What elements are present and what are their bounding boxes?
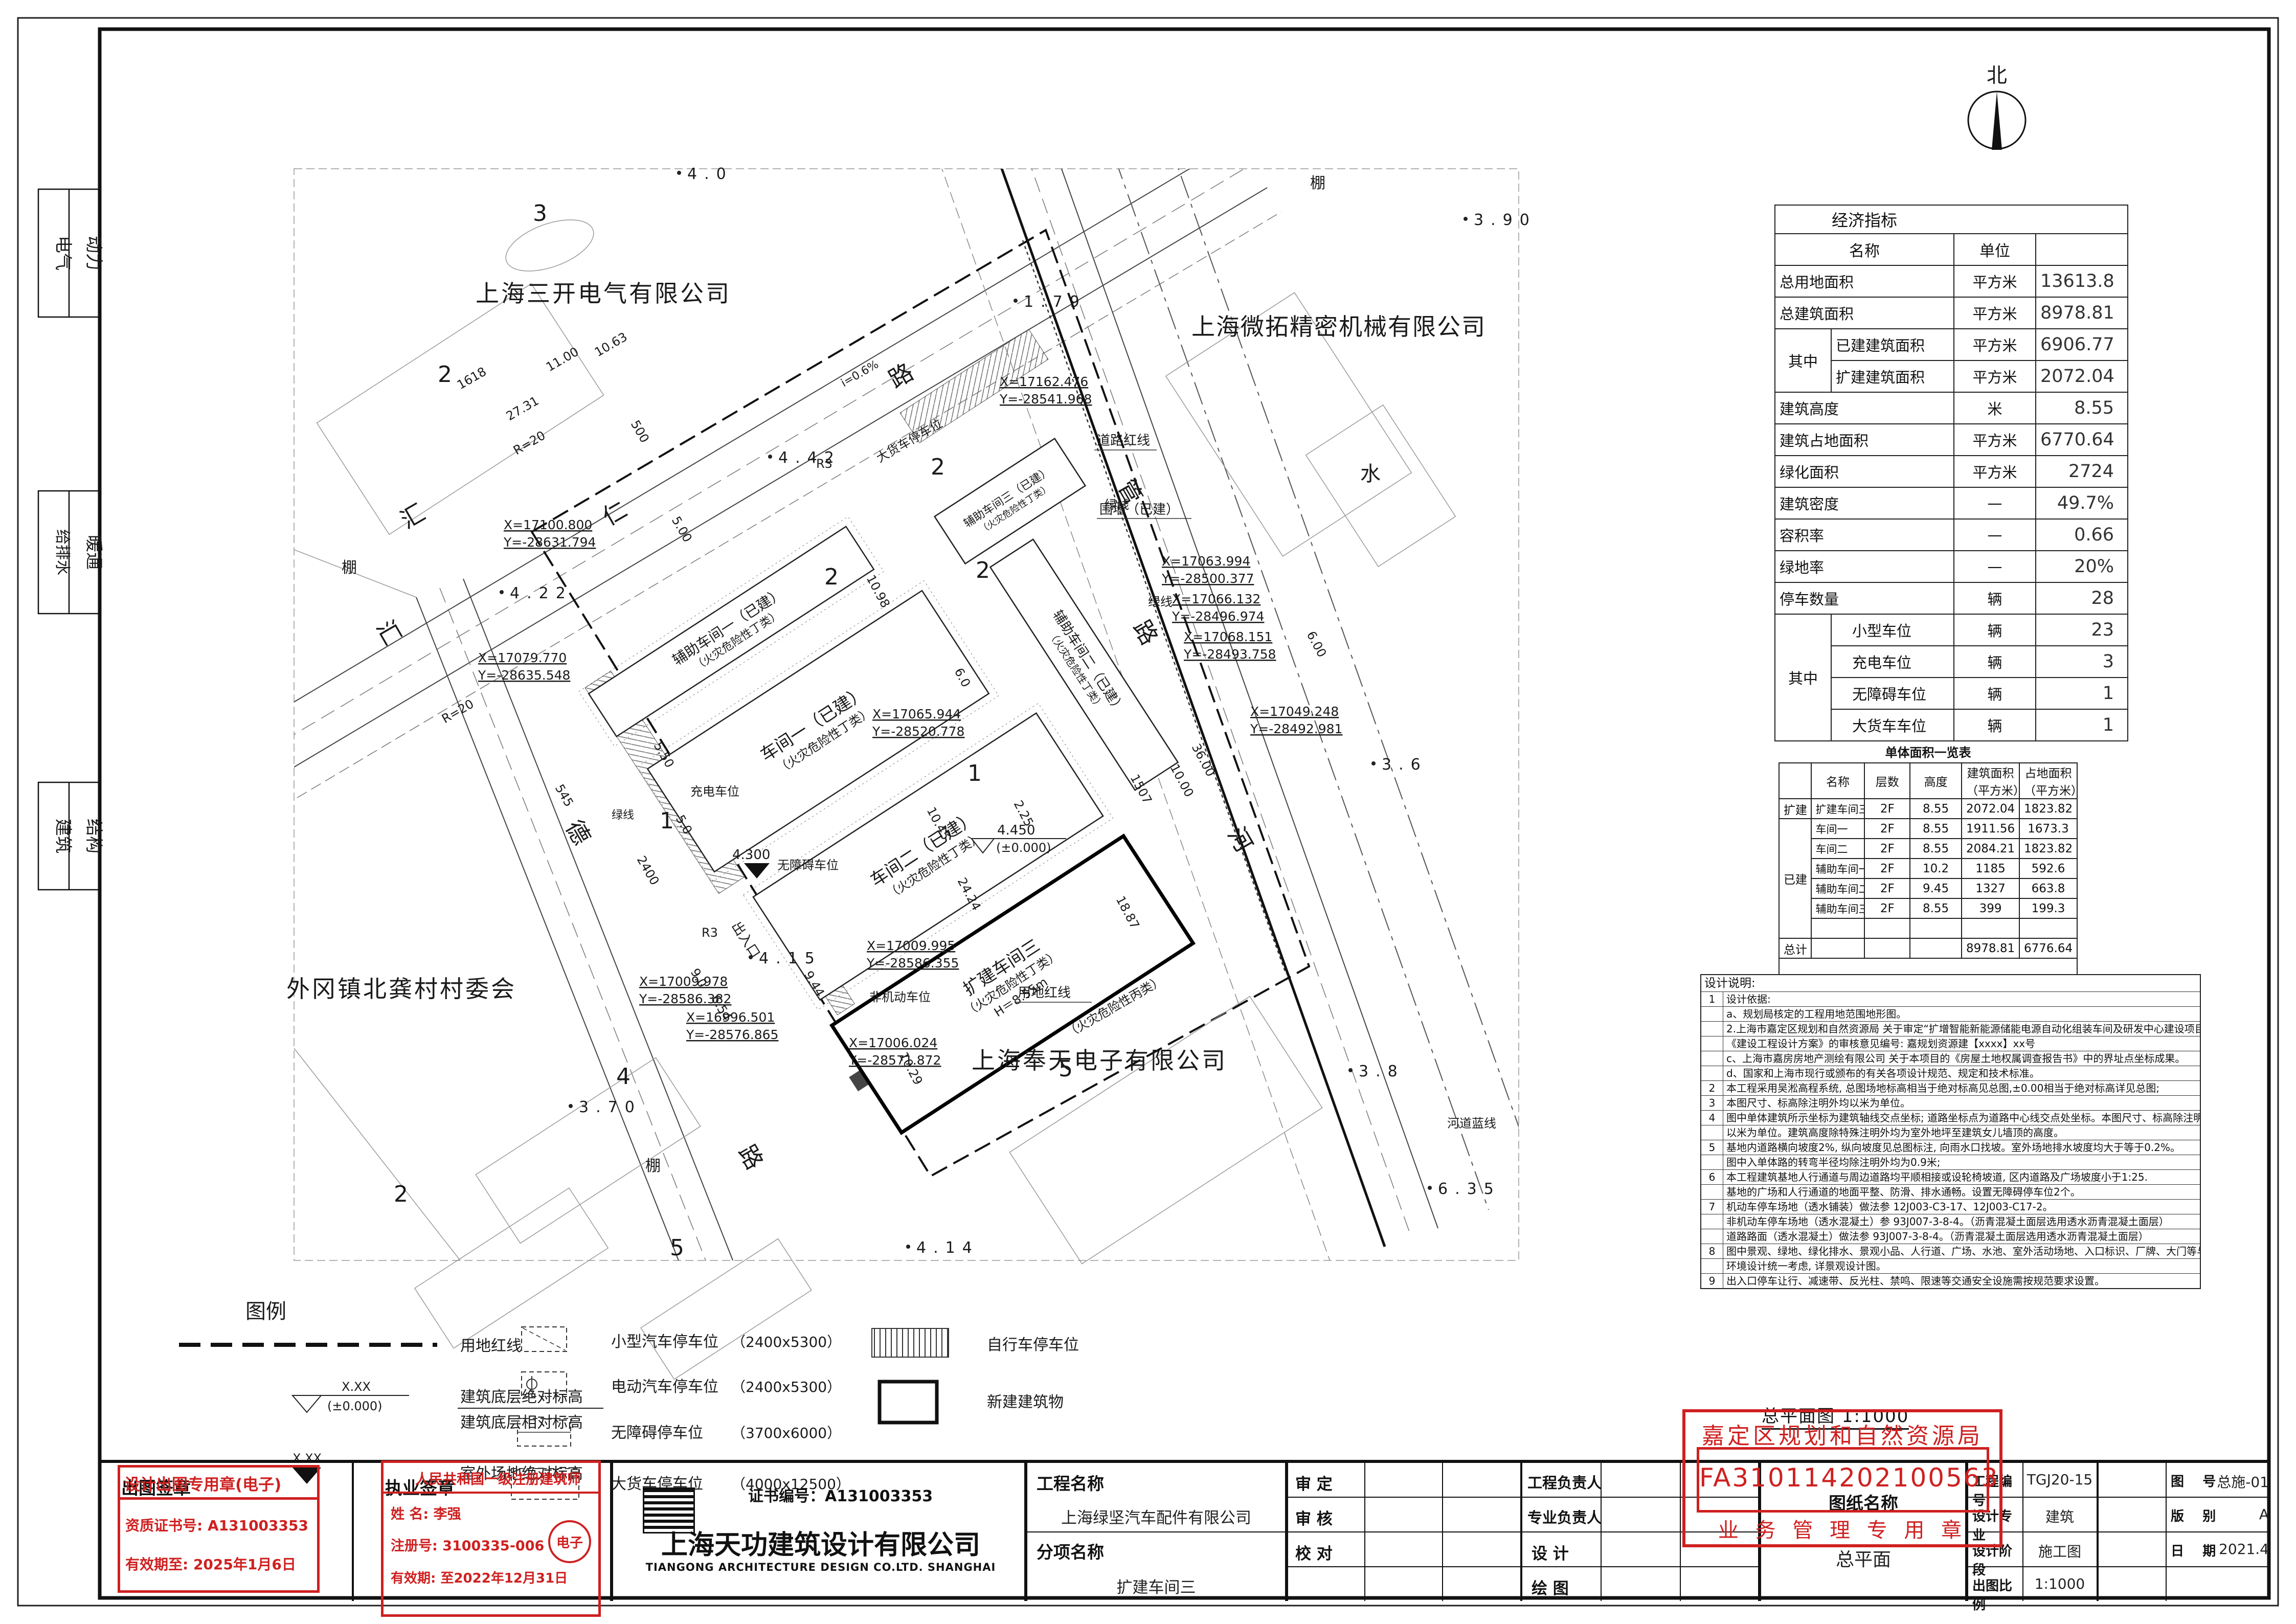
discipline-electrical: 电气: [53, 236, 73, 270]
note-no: 6: [1701, 1170, 1723, 1184]
eco-title: 经济指标: [1775, 205, 2128, 234]
license-seal-reg: 注册号: 3100335-006: [391, 1535, 544, 1554]
svg-text:10.00: 10.00: [1167, 762, 1197, 800]
note-text: 环境设计统一考虑, 详景观设计图。: [1723, 1259, 2200, 1273]
cell: 9.45: [1910, 878, 1962, 898]
svg-text:R3: R3: [702, 926, 718, 940]
cell: 13613.8: [2036, 265, 2128, 297]
svg-text:2400: 2400: [634, 853, 662, 888]
cell: 车间一: [1811, 819, 1865, 839]
svg-text:1: 1: [660, 808, 674, 834]
svg-text:R3: R3: [816, 457, 832, 471]
svg-text:6.35: 6.35: [1438, 1180, 1501, 1198]
svg-text:河道蓝线: 河道蓝线: [1447, 1116, 1496, 1131]
note-no: [1701, 1125, 1723, 1140]
svg-text:Y=-28493.758: Y=-28493.758: [1183, 647, 1276, 662]
cell: 名称: [1811, 763, 1865, 799]
svg-text:道路红线: 道路红线: [1097, 433, 1150, 448]
license-seal-valid: 有效期: 至2022年12月31日: [391, 1568, 568, 1587]
cell: —: [1954, 487, 2036, 519]
svg-text:10.63: 10.63: [592, 330, 630, 360]
cell: 辆: [1954, 582, 2036, 614]
cell-group: 其中: [1775, 329, 1831, 392]
svg-text:绿线: 绿线: [612, 809, 634, 822]
cell: 8.55: [1910, 799, 1962, 819]
cell: 建筑高度: [1775, 392, 1954, 424]
role-drafter: 绘 图: [1532, 1575, 1569, 1598]
svg-text:用地红线: 用地红线: [460, 1337, 522, 1355]
license-seal-stamp: 人民共和国一级注册建筑师 姓 名: 李强 注册号: 3100335-006 有效…: [381, 1460, 601, 1617]
note-text: 本工程采用吴淞高程系统, 总图场地标高相当于绝对标高见总图,±0.00相当于绝对…: [1723, 1081, 2200, 1095]
note-no: 9: [1701, 1274, 1723, 1288]
cell-group: 已建: [1779, 819, 1811, 938]
svg-text:Y=-28500.377: Y=-28500.377: [1161, 571, 1254, 586]
cell: [1910, 918, 1962, 938]
note-text: 本工程建筑基地人行通道与周边道路均平顺相接或设轮椅坡道, 区内道路及广场坡度小于…: [1723, 1170, 2200, 1184]
svg-text:路: 路: [884, 358, 918, 394]
cell: 大货车车位: [1831, 709, 1954, 741]
svg-text:X=17162.476: X=17162.476: [1000, 374, 1088, 389]
svg-text:德: 德: [560, 816, 596, 850]
svg-text:Y=-28496.974: Y=-28496.974: [1172, 609, 1264, 624]
note-no: [1701, 1007, 1723, 1021]
cell: 容积率: [1775, 519, 1954, 551]
svg-text:绿线: 绿线: [1148, 595, 1173, 609]
svg-text:仁: 仁: [598, 495, 632, 531]
cell: 占地面积（平方米）: [2019, 763, 2077, 799]
svg-text:X=17049.248: X=17049.248: [1250, 704, 1339, 719]
discipline-struct: 结构: [83, 819, 104, 853]
svg-text:水: 水: [1360, 462, 1381, 486]
svg-text:充电车位: 充电车位: [690, 784, 739, 799]
cell: 辆: [1954, 709, 2036, 741]
approval-shending: 审 定: [1295, 1471, 1333, 1494]
svg-text:2: 2: [824, 564, 839, 590]
cell: [1910, 938, 1962, 958]
svg-text:X.XX: X.XX: [342, 1380, 371, 1394]
sub-project-value: 扩建车间三: [1027, 1574, 1285, 1597]
north-arrow: 北: [1968, 64, 2025, 150]
svg-text:4.300: 4.300: [732, 847, 770, 863]
svg-text:4.15: 4.15: [759, 950, 822, 967]
cell: 1: [2036, 678, 2128, 709]
svg-text:5.00: 5.00: [669, 514, 695, 545]
svg-text:500: 500: [628, 418, 652, 445]
license-seal-name: 姓 名: 李强: [391, 1503, 461, 1523]
note-no: 7: [1701, 1200, 1723, 1214]
cell: [1864, 918, 1910, 938]
cell: [1962, 918, 2019, 938]
economic-indicators-table: 经济指标 名称 单位 总用地面积平方米13613.8 总建筑面积平方米8978.…: [1774, 205, 2128, 741]
cell: 1327: [1962, 878, 2019, 898]
meta-discipline: 建筑: [2023, 1506, 2096, 1526]
svg-text:Y=-28635.548: Y=-28635.548: [478, 668, 570, 683]
authority-name: 嘉定区规划和自然资源局: [1685, 1417, 1999, 1450]
cell: 2F: [1864, 859, 1910, 878]
drawing-sheet: { "sheet": { "margin_disciplines": {"d1"…: [0, 0, 2296, 1624]
cell: 2084.21: [1962, 839, 2019, 859]
note-no: 4: [1701, 1111, 1723, 1125]
svg-text:棚: 棚: [342, 559, 357, 577]
neighbor-fengtian: 上海奉天电子有限公司: [972, 1047, 1227, 1074]
cell: 层数: [1864, 763, 1910, 799]
col-header: [2036, 234, 2128, 265]
cell: 2F: [1864, 799, 1910, 819]
svg-text:棚: 棚: [645, 1157, 661, 1175]
svg-text:建筑底层相对标高: 建筑底层相对标高: [460, 1414, 583, 1432]
issue-seal-cert: 资质证书号: A131003353: [125, 1515, 308, 1535]
svg-text:X=17009.978: X=17009.978: [639, 974, 728, 989]
note-text: 设计依据:: [1723, 992, 2200, 1006]
cell: 车间二: [1811, 839, 1865, 859]
cell: 绿化面积: [1775, 456, 1954, 487]
cell: 平方米: [1954, 265, 2036, 297]
meta-version: A: [2194, 1506, 2289, 1523]
discipline-power: 动力: [83, 236, 104, 270]
company-name-en: TIANGONG ARCHITECTURE DESIGN CO.LTD. SHA…: [621, 1561, 1020, 1573]
cell: 充电车位: [1831, 646, 1954, 678]
svg-text:3.8: 3.8: [1359, 1063, 1405, 1080]
svg-text:X=17068.151: X=17068.151: [1184, 629, 1272, 644]
svg-text:1.79: 1.79: [1024, 293, 1087, 311]
svg-text:10.98: 10.98: [864, 573, 893, 611]
cell: 辆: [1954, 614, 2036, 646]
note-text: 《建设工程设计方案》的审核意见编号: 嘉规划资源建【xxxx】xx号: [1723, 1036, 2200, 1051]
cell: 扩建建筑面积: [1831, 360, 1954, 392]
col-header: 单位: [1954, 234, 2036, 265]
cell: 1185: [1962, 859, 2019, 878]
svg-text:5: 5: [670, 1235, 684, 1261]
svg-text:小型汽车停车位: 小型汽车停车位: [611, 1333, 718, 1351]
neighbor-cun: 外冈镇北龚村村委会: [286, 975, 516, 1003]
cell-group: 扩建: [1779, 799, 1811, 819]
svg-text:河: 河: [1222, 823, 1258, 857]
cell: 建筑密度: [1775, 487, 1954, 519]
svg-text:自行车停车位: 自行车停车位: [987, 1336, 1079, 1354]
svg-text:路: 路: [1128, 616, 1163, 650]
cell: 平方米: [1954, 329, 2036, 360]
approval-jiaodui: 校 对: [1295, 1541, 1333, 1564]
cell: 辅助车间二: [1811, 878, 1865, 898]
svg-text:3.70: 3.70: [579, 1098, 642, 1116]
cell: 8.55: [1910, 839, 1962, 859]
svg-text:Y=-28586.355: Y=-28586.355: [866, 956, 959, 971]
svg-text:路: 路: [733, 1140, 769, 1175]
svg-text:无障碍停车位: 无障碍停车位: [611, 1424, 703, 1442]
svg-text:出入口: 出入口: [728, 919, 763, 961]
svg-text:R=20: R=20: [511, 428, 548, 458]
svg-text:2: 2: [394, 1181, 408, 1207]
svg-text:X=17066.132: X=17066.132: [1172, 592, 1260, 606]
company-cert-no: 证书编号：A131003353: [748, 1483, 933, 1506]
discipline-arch: 建筑: [53, 819, 73, 853]
license-eseal-circle: 电子: [548, 1520, 591, 1563]
svg-text:（3700x6000）: （3700x6000）: [731, 1425, 841, 1441]
svg-text:X=17100.800: X=17100.800: [504, 517, 592, 532]
note-no: 3: [1701, 1096, 1723, 1110]
note-text: c、上海市嘉房房地产测绘有限公司 关于本项目的《房屋土地权属调查报告书》中的界址…: [1723, 1051, 2200, 1066]
note-text: 本图尺寸、标高除注明外均以米为单位。: [1723, 1096, 2200, 1110]
svg-text:2: 2: [976, 557, 990, 583]
cell: 1911.56: [1962, 819, 2019, 839]
svg-text:6.00: 6.00: [1304, 629, 1330, 660]
svg-text:电动汽车停车位: 电动汽车停车位: [611, 1378, 718, 1396]
authority-number: FA310114202100563: [1699, 1463, 1987, 1493]
sub-project-label: 分项名称: [1037, 1539, 1104, 1563]
svg-text:围墙（已建）: 围墙（已建）: [1099, 502, 1179, 517]
unit-area-title: 单体面积一览表: [1779, 742, 2078, 760]
svg-text:4: 4: [616, 1064, 631, 1090]
role-project-lead: 工程负责人: [1527, 1471, 1602, 1493]
cell: 2F: [1864, 898, 1910, 918]
svg-text:X=17006.024: X=17006.024: [849, 1035, 937, 1050]
authority-seal-type: 业 务 管 理 专 用 章: [1685, 1514, 1999, 1543]
cell: 1: [2036, 709, 2128, 741]
cell: 0.66: [2036, 519, 2128, 551]
svg-text:X=17063.994: X=17063.994: [1162, 554, 1250, 569]
cell: 停车数量: [1775, 582, 1954, 614]
note-text: 2.上海市嘉定区规划和自然资源局 关于审定“扩增智能新能源储能电源自动化组装车间…: [1723, 1022, 2200, 1036]
cell: 平方米: [1954, 360, 2036, 392]
cell-total: 总计: [1779, 938, 1811, 958]
svg-text:棚: 棚: [1310, 174, 1325, 192]
svg-text:(±0.000): (±0.000): [327, 1399, 382, 1413]
cell: 2F: [1864, 878, 1910, 898]
meta-scale: 1:1000: [2023, 1575, 2096, 1592]
cell: 辆: [1954, 678, 2036, 709]
svg-text:Y=-28492.981: Y=-28492.981: [1250, 721, 1342, 736]
note-text: 图中入单体路的转弯半径均除注明外均为0.9米;: [1723, 1155, 2200, 1169]
cell: 6906.77: [2036, 329, 2128, 360]
svg-text:27.31: 27.31: [504, 394, 542, 424]
cell: 建筑面积（平方米）: [1962, 763, 2019, 799]
col-header: 名称: [1775, 234, 1954, 265]
cell: 2072.04: [2036, 360, 2128, 392]
cell: [1864, 938, 1910, 958]
cell: —: [1954, 551, 2036, 582]
cell: 3: [2036, 646, 2128, 678]
svg-text:（2400x5300）: （2400x5300）: [731, 1379, 841, 1395]
cell: [1811, 918, 1865, 938]
license-seal-title: 人民共和国一级注册建筑师: [415, 1468, 595, 1488]
authority-inner-box: FA310114202100563: [1697, 1447, 1989, 1513]
cell: 28: [2036, 582, 2128, 614]
svg-text:(±0.000): (±0.000): [996, 841, 1051, 855]
cell: 10.2: [1910, 859, 1962, 878]
discipline-hvac: 暖通: [83, 535, 104, 570]
svg-text:4.22: 4.22: [510, 584, 573, 602]
cell: 绿地率: [1775, 551, 1954, 582]
project-name-label: 工程名称: [1037, 1470, 1104, 1495]
note-no: 2: [1701, 1081, 1723, 1095]
neighbor-buildings: [317, 210, 1456, 1380]
svg-text:Y=-28576.865: Y=-28576.865: [686, 1027, 778, 1042]
cell: 辅助车间三: [1811, 898, 1865, 918]
svg-text:545: 545: [552, 782, 576, 809]
cell: 49.7%: [2036, 487, 2128, 519]
svg-text:Y=-28520.778: Y=-28520.778: [872, 724, 964, 739]
role-discipline-lead: 专业负责人: [1527, 1506, 1602, 1527]
svg-text:11.00: 11.00: [544, 345, 581, 375]
note-no: [1701, 1229, 1723, 1244]
svg-text:建筑底层绝对标高: 建筑底层绝对标高: [460, 1388, 583, 1406]
issue-seal-valid: 有效期至: 2025年1月6日: [125, 1553, 296, 1574]
cell: 6770.64: [2036, 424, 2128, 456]
cell: 6776.64: [2019, 938, 2077, 958]
cell: 2F: [1864, 819, 1910, 839]
svg-text:汇: 汇: [371, 616, 407, 650]
cell-group: 其中: [1775, 614, 1831, 741]
cell: 2F: [1864, 839, 1910, 859]
approval-shenhe: 审 核: [1295, 1506, 1333, 1529]
issue-seal-title: 设计出图专用章(电子): [124, 1472, 313, 1495]
cell: 2724: [2036, 456, 2128, 487]
note-text: 非机动车停车场地（透水混凝土）参 93J007-3-8-4。（沥青混凝土面层选用…: [1723, 1214, 2200, 1229]
svg-text:4.14: 4.14: [916, 1239, 979, 1257]
note-no: [1701, 1214, 1723, 1229]
discipline-plumbing: 给排水: [53, 529, 71, 575]
svg-text:1618: 1618: [455, 364, 489, 392]
issue-seal-stamp: 设计出图专用章(电子) 资质证书号: A131003353 有效期至: 2025…: [118, 1465, 320, 1593]
svg-text:无障碍车位: 无障碍车位: [777, 858, 839, 872]
svg-text:用地红线: 用地红线: [1018, 985, 1071, 1001]
drawing-name-value: 总平面: [1761, 1545, 1966, 1571]
note-no: [1701, 1155, 1723, 1169]
cell: 总用地面积: [1775, 265, 1954, 297]
svg-text:4.0: 4.0: [687, 165, 733, 183]
cell: 23: [2036, 614, 2128, 646]
legend-title: 图例: [245, 1300, 286, 1323]
svg-text:X=17079.770: X=17079.770: [478, 650, 567, 665]
svg-text:5: 5: [1059, 1056, 1073, 1082]
cell: 小型车位: [1831, 614, 1954, 646]
cell: 建筑占地面积: [1775, 424, 1954, 456]
cell: 无障碍车位: [1831, 678, 1954, 709]
cell: 199.3: [2019, 898, 2077, 918]
cell: 2072.04: [1962, 799, 2019, 819]
neighbor-sankai: 上海三开电气有限公司: [476, 280, 731, 307]
project-name-value: 上海绿坚汽车配件有限公司: [1027, 1505, 1285, 1528]
svg-text:新建建筑物: 新建建筑物: [987, 1393, 1064, 1411]
cell: 592.6: [2019, 859, 2077, 878]
meta-project-no: TGJ20-15: [2023, 1471, 2096, 1488]
cell: 米: [1954, 392, 2036, 424]
meta-scale-label: 出图比例: [1972, 1575, 2019, 1613]
note-no: [1701, 1036, 1723, 1051]
building-aux3: 辅助车间三（已建） （火灾危险性丁类）: [935, 439, 1086, 564]
svg-text:3.6: 3.6: [1382, 756, 1428, 774]
svg-text:汇: 汇: [396, 499, 430, 534]
cell: 辆: [1954, 646, 2036, 678]
cell: 辅助车间一: [1811, 859, 1865, 878]
svg-text:36.00: 36.00: [1189, 741, 1218, 779]
cell: 8.55: [1910, 819, 1962, 839]
svg-text:1: 1: [967, 760, 982, 786]
svg-text:Y=-28541.968: Y=-28541.968: [999, 392, 1092, 407]
note-text: 图中景观、绿地、绿化排水、景观小品、人行道、广场、水池、室外活动场地、入口标识、…: [1723, 1244, 2200, 1258]
note-text: 基地内道路横向坡度2%, 纵向坡度见总图标注, 向雨水口找坡。室外场地排水坡度均…: [1723, 1140, 2200, 1155]
note-text: 道路路面（透水混凝土）做法参 93J007-3-8-4。（沥青混凝土面层选用透水…: [1723, 1229, 2200, 1244]
unit-area-table: 单体面积一览表 名称 层数 高度 建筑面积（平方米） 占地面积（平方米） 扩建扩…: [1779, 742, 2078, 980]
cell: 扩建车间三: [1811, 799, 1865, 819]
svg-text:3.90: 3.90: [1474, 211, 1537, 229]
cell: 8.55: [2036, 392, 2128, 424]
note-no: [1701, 1185, 1723, 1199]
cell: 高度: [1910, 763, 1962, 799]
cell: [1811, 938, 1865, 958]
cell: [2019, 918, 2077, 938]
cell: 1823.82: [2019, 839, 2077, 859]
cell: [1779, 763, 1811, 799]
north-label: 北: [1987, 64, 2007, 87]
svg-text:非机动车位: 非机动车位: [869, 990, 931, 1004]
svg-text:Y=-28631.794: Y=-28631.794: [503, 535, 596, 550]
cell: 平方米: [1954, 297, 2036, 329]
cell: 1673.3: [2019, 819, 2077, 839]
svg-text:X=17065.944: X=17065.944: [872, 707, 961, 721]
note-no: [1701, 1066, 1723, 1080]
svg-text:2: 2: [931, 454, 945, 480]
authority-stamp: 嘉定区规划和自然资源局 FA310114202100563 业 务 管 理 专 …: [1682, 1409, 2002, 1547]
role-designer: 设 计: [1532, 1541, 1569, 1564]
note-no: 1: [1701, 992, 1723, 1006]
svg-text:3: 3: [533, 200, 547, 227]
note-no: 5: [1701, 1140, 1723, 1155]
note-text: 机动车停车场地（透水铺装）做法参 12J003-C3-17、12J003-C17…: [1723, 1200, 2200, 1214]
note-text: 以米为单位。建筑高度除特殊注明外均为室外地坪至建筑女儿墙顶的高度。: [1723, 1125, 2200, 1140]
cell: 663.8: [2019, 878, 2077, 898]
note-no: 8: [1701, 1244, 1723, 1258]
svg-text:2: 2: [438, 362, 452, 388]
meta-phase: 施工图: [2023, 1541, 2096, 1561]
note-text: a、规划局核定的工程用地范围地形图。: [1723, 1007, 2200, 1021]
svg-text:Y=-28571.872: Y=-28571.872: [848, 1053, 941, 1068]
cell: 399: [1962, 898, 2019, 918]
cell: 1823.82: [2019, 799, 2077, 819]
meta-sheet-no: 总施-01: [2194, 1471, 2273, 1492]
note-no: [1701, 1022, 1723, 1036]
cell: —: [1954, 519, 2036, 551]
company-name-cn: 上海天功建筑设计有限公司: [621, 1523, 1020, 1562]
cell: 平方米: [1954, 456, 2036, 487]
cell: 20%: [2036, 551, 2128, 582]
note-text: 出入口停车让行、减速带、反光柱、禁鸣、限速等交通安全设施需按规范要求设置。: [1723, 1274, 2200, 1288]
cell: 已建建筑面积: [1831, 329, 1954, 360]
notes-title: 设计说明:: [1701, 975, 2200, 992]
svg-text:（2400x5300）: （2400x5300）: [731, 1334, 841, 1350]
note-no: [1701, 1259, 1723, 1273]
note-text: d、国家和上海市现行或颁布的有关各项设计规范、规定和技术标准。: [1723, 1066, 2200, 1080]
design-notes: 设计说明: 1设计依据: a、规划局核定的工程用地范围地形图。 2.上海市嘉定区…: [1700, 974, 2201, 1289]
cell: 8978.81: [1962, 938, 2019, 958]
svg-text:X=17009.995: X=17009.995: [867, 938, 955, 953]
note-text: 图中单体建筑所示坐标为建筑轴线交点坐标; 道路坐标点为道路中心线交点处坐标。本图…: [1723, 1111, 2200, 1125]
cell: 总建筑面积: [1775, 297, 1954, 329]
cell: 8978.81: [2036, 297, 2128, 329]
license-eseal-text: 电子: [556, 1532, 583, 1551]
note-text: 基地的广场和人行通道的地面平整、防滑、排水通畅。设置无障碍停车位2个。: [1723, 1185, 2200, 1199]
meta-date: 2021.4: [2194, 1541, 2273, 1558]
neighbor-weituo: 上海微拓精密机械有限公司: [1191, 313, 1486, 341]
note-no: [1701, 1051, 1723, 1066]
cell: 平方米: [1954, 424, 2036, 456]
cell: 8.55: [1910, 898, 1962, 918]
